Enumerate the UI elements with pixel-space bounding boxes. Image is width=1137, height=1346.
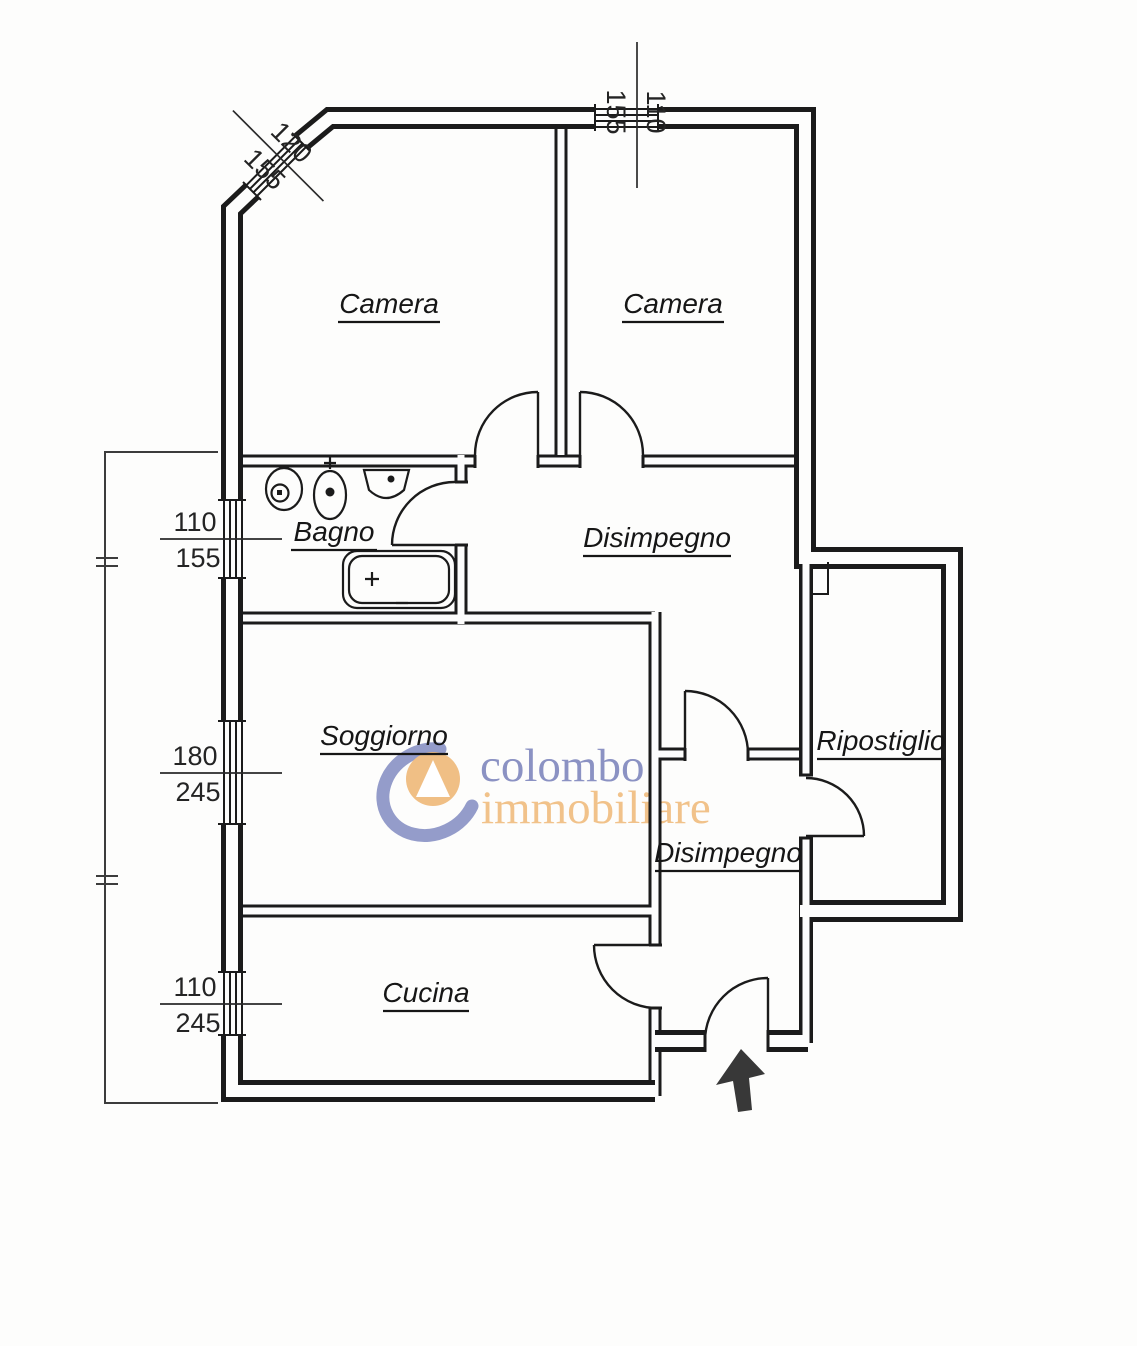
room-label-ripostiglio: Ripostiglio — [816, 725, 945, 756]
camera1-door — [475, 392, 538, 455]
sink-icon — [364, 470, 409, 498]
outer-walls — [232, 118, 952, 1091]
interior-walls — [228, 118, 806, 1096]
bagno-dim-label: 110 155 — [160, 507, 282, 573]
entrance-arrow-icon — [716, 1049, 765, 1112]
doors — [392, 392, 864, 1041]
cucina-door — [594, 945, 657, 1008]
soggiorno-dim-label: 180 245 — [160, 741, 282, 807]
svg-text:110: 110 — [641, 90, 671, 133]
windows — [218, 104, 658, 1035]
room-label-disimpegno-2: Disimpegno — [654, 837, 802, 868]
svg-text:180: 180 — [172, 741, 217, 771]
interior-walls — [228, 118, 806, 1096]
room-label-soggiorno: Soggiorno — [320, 720, 448, 751]
entry-door — [705, 978, 768, 1041]
room-label-camera-2: Camera — [623, 288, 723, 319]
watermark-line2: immobiliare — [481, 782, 711, 834]
ripostiglio-door — [806, 778, 864, 836]
disimpegno-door — [685, 691, 748, 754]
svg-text:245: 245 — [175, 1008, 220, 1038]
camera2-door — [580, 392, 643, 455]
svg-text:155: 155 — [601, 89, 631, 134]
svg-text:110: 110 — [173, 972, 216, 1002]
svg-text:110: 110 — [173, 507, 216, 537]
floorplan-page: colombo immobiliare — [0, 0, 1137, 1346]
svg-text:155: 155 — [175, 543, 220, 573]
room-label-camera-1: Camera — [339, 288, 439, 319]
bidet-icon — [266, 468, 302, 510]
cucina-dim-label: 110 245 — [160, 972, 282, 1038]
bathtub-icon — [343, 551, 455, 608]
floor-plan: colombo immobiliare — [0, 0, 1137, 1346]
room-label-disimpegno-1: Disimpegno — [583, 522, 731, 553]
room-label-cucina: Cucina — [382, 977, 469, 1008]
svg-text:245: 245 — [175, 777, 220, 807]
room-label-bagno: Bagno — [294, 516, 375, 547]
outer-walls — [232, 118, 952, 1091]
